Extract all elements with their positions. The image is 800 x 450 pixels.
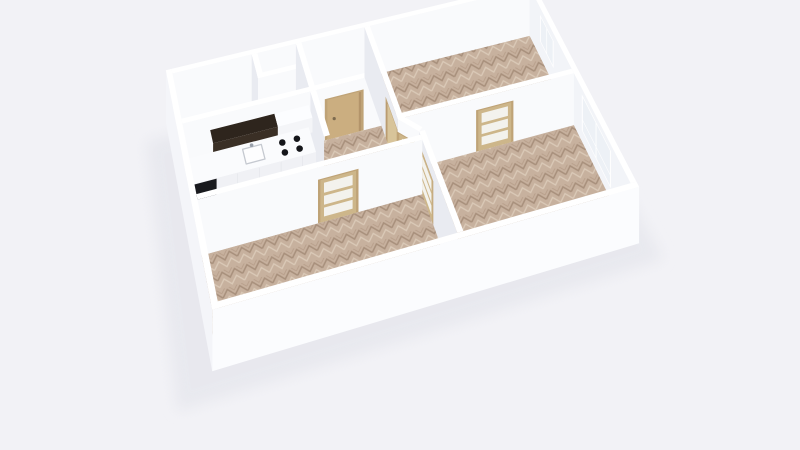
entrance-door-edge — [359, 92, 361, 131]
render-root — [146, 0, 664, 412]
cooktop-burner-2 — [294, 135, 301, 142]
floorplan-3d-render — [0, 0, 800, 450]
cooktop-burner-1 — [279, 139, 286, 146]
kitchen-sink-faucet — [250, 143, 254, 147]
doorway-bedroom-1-leaf-edge — [386, 101, 387, 143]
floorplan-canvas — [0, 0, 800, 450]
cooktop-burner-3 — [282, 149, 289, 156]
cooktop-burner-4 — [296, 145, 303, 152]
entrance-door-handle — [333, 117, 336, 120]
